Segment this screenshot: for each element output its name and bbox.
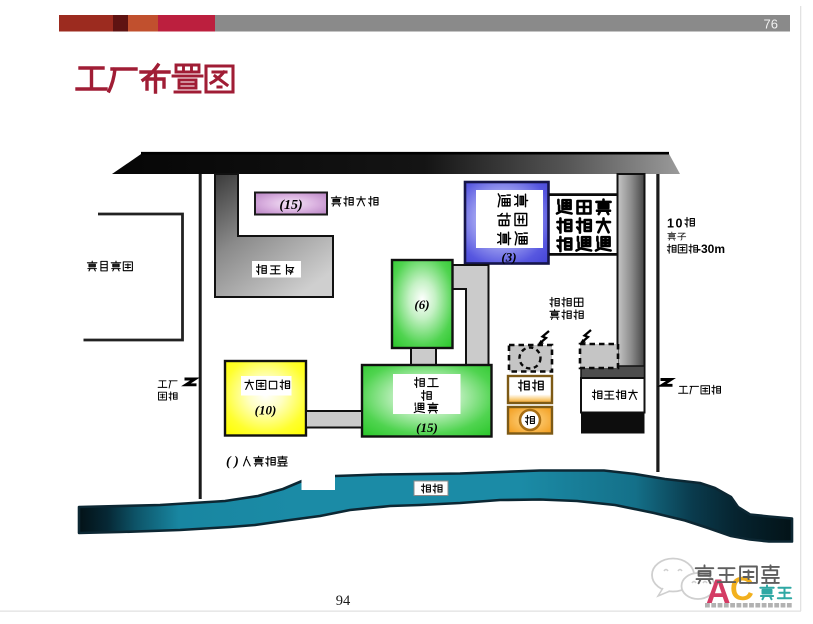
svg-text:(6): (6) (414, 297, 429, 312)
svg-text:(15): (15) (279, 198, 302, 213)
svg-text:(15): (15) (416, 420, 438, 435)
svg-text:( ): ( ) (226, 455, 239, 470)
svg-text:(3): (3) (501, 250, 516, 265)
svg-text:-30m: -30m (697, 242, 725, 256)
svg-text:(10): (10) (255, 403, 277, 418)
svg-text:76: 76 (764, 17, 778, 32)
svg-text:94: 94 (336, 593, 351, 609)
svg-text:10: 10 (667, 217, 684, 231)
